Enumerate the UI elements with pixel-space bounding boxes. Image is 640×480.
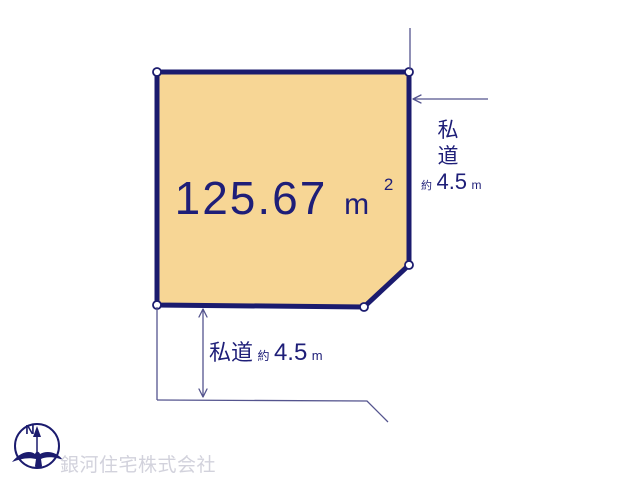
company-watermark: 銀河住宅株式会社: [60, 454, 216, 476]
bottom-road-width-unit: m: [312, 348, 323, 363]
corner-marker: [153, 68, 161, 76]
bottom-road-edge-line: [157, 400, 388, 422]
plot-area-superscript: 2: [384, 175, 393, 194]
corner-marker: [405, 68, 413, 76]
corner-marker: [360, 303, 368, 311]
right-road-label-char1: 私: [438, 119, 459, 142]
plot-area-value: 125.67: [175, 172, 328, 224]
right-road-width-label: 約 4.5 m: [421, 169, 482, 194]
right-road-label-char2: 道: [438, 145, 459, 168]
right-road-width-unit: m: [472, 178, 482, 192]
compass-north-label: N: [25, 422, 34, 437]
bottom-road-label: 私道 約 4.5 m: [209, 339, 323, 366]
corner-marker: [405, 261, 413, 269]
land-plot-diagram: 125.67 m 2 私 道 約 4.5 m 私道 約 4.5 m: [0, 0, 640, 480]
bottom-road-name: 私道: [209, 340, 253, 365]
bottom-road-width-value: 4.5: [274, 339, 307, 366]
diagram-svg: 125.67 m 2 私 道 約 4.5 m 私道 約 4.5 m: [0, 0, 640, 480]
north-compass-icon: N: [12, 422, 63, 468]
right-road-label: 私 道 約 4.5 m: [421, 119, 482, 194]
plot-area-unit: m: [344, 188, 369, 221]
right-road-width-value: 4.5: [436, 169, 467, 194]
bottom-road-approx: 約: [257, 348, 269, 363]
right-road-approx: 約: [421, 178, 432, 192]
